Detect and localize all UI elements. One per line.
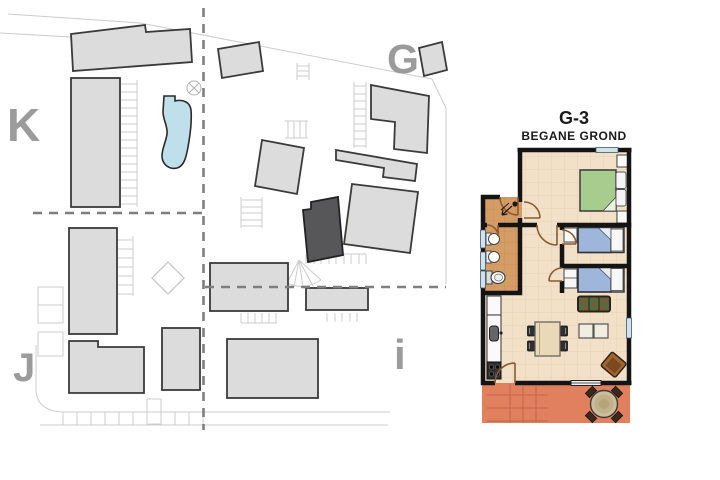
building-mid-small: [162, 328, 200, 390]
kitchen: [487, 296, 503, 379]
building-g-lower: [344, 184, 418, 253]
coffee-table: [579, 324, 593, 338]
pillow: [611, 229, 623, 251]
label-block-k: K: [7, 99, 40, 151]
floor-plan: G-3 BEGANE GROND: [460, 0, 720, 480]
nightstand: [617, 211, 628, 223]
kitchen-sink: [490, 326, 499, 341]
highlighted-building-g3: [303, 197, 343, 262]
building-top-left: [71, 25, 192, 71]
pool: [162, 96, 191, 168]
kitchen-cabinet: [487, 296, 501, 315]
building-top-right: [419, 42, 447, 76]
plaza-diamond: [152, 262, 184, 294]
building-k-tower-1: [71, 78, 120, 207]
label-block-i: i: [394, 331, 406, 378]
dining-table: [535, 322, 560, 356]
nightstand: [617, 155, 628, 167]
building-small-rotated: [218, 42, 263, 78]
building-bottom-large: [227, 339, 318, 398]
building-mid-bar: [336, 150, 417, 181]
window: [481, 252, 486, 270]
pillow: [616, 190, 626, 207]
terrace-table: [591, 391, 618, 418]
site-plan: K G J i: [0, 0, 460, 480]
label-block-j: J: [13, 346, 35, 390]
screenshot-root: K G J i G-3 BEGANE GROND: [0, 0, 720, 480]
coffee-table: [594, 324, 608, 338]
building-g-large: [371, 85, 429, 153]
sofa: [578, 297, 610, 312]
tree-icon: [187, 81, 201, 95]
building-k-tower-2: [69, 228, 117, 334]
pillow: [616, 172, 626, 189]
bedroom-3: [564, 267, 624, 292]
cabinet: [564, 269, 577, 288]
label-block-g: G: [387, 36, 419, 82]
window: [481, 230, 486, 248]
pillow: [611, 269, 623, 291]
floor-subtitle: BEGANE GROND: [521, 129, 626, 143]
window: [596, 148, 618, 153]
window: [627, 318, 632, 338]
building-mid-square: [255, 140, 304, 194]
building-row-2: [306, 288, 368, 310]
building-j-block: [69, 341, 144, 393]
stairs-fan: [287, 260, 321, 288]
window: [481, 271, 486, 288]
terrace: [482, 383, 630, 423]
unit-title: G-3: [559, 108, 589, 128]
washbasin: [489, 252, 500, 263]
